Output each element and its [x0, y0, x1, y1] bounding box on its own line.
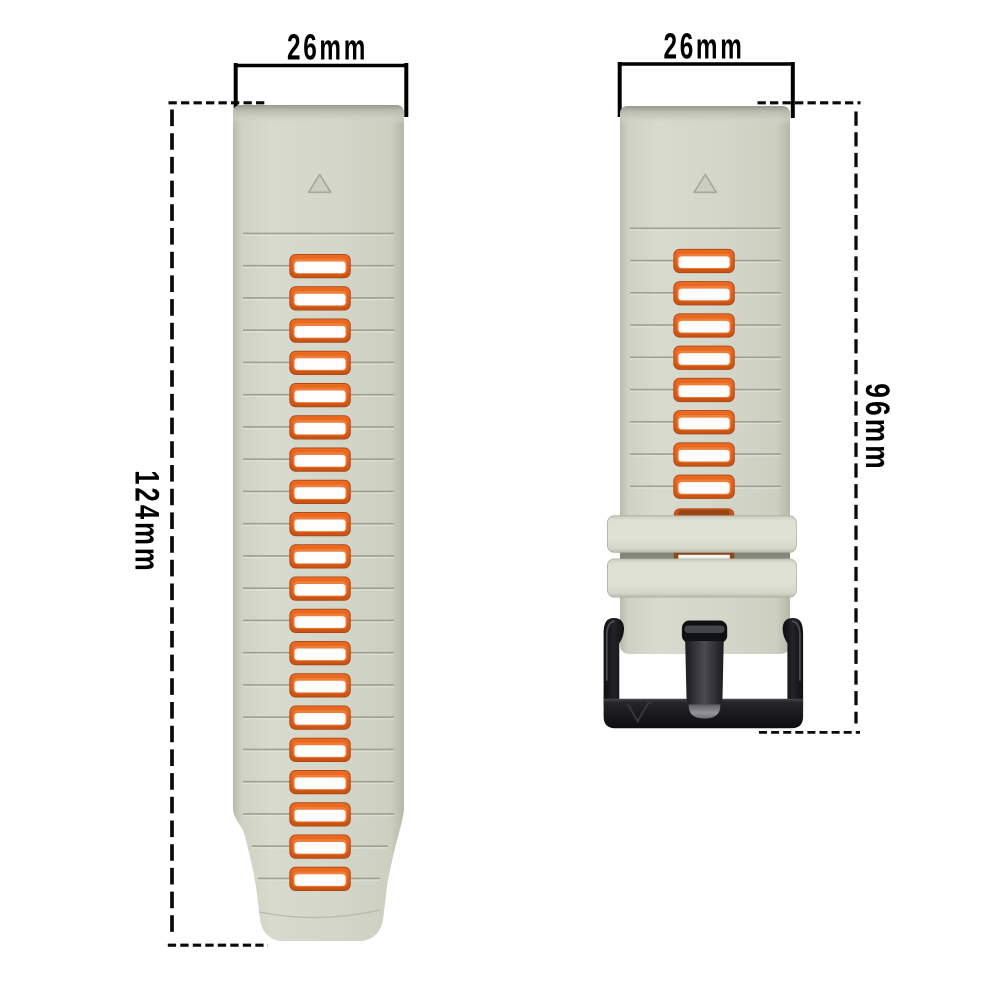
svg-text:26mm: 26mm: [287, 27, 368, 68]
svg-text:96mm: 96mm: [858, 383, 896, 472]
svg-text:26mm: 26mm: [664, 26, 745, 67]
svg-text:124mm: 124mm: [128, 470, 166, 574]
